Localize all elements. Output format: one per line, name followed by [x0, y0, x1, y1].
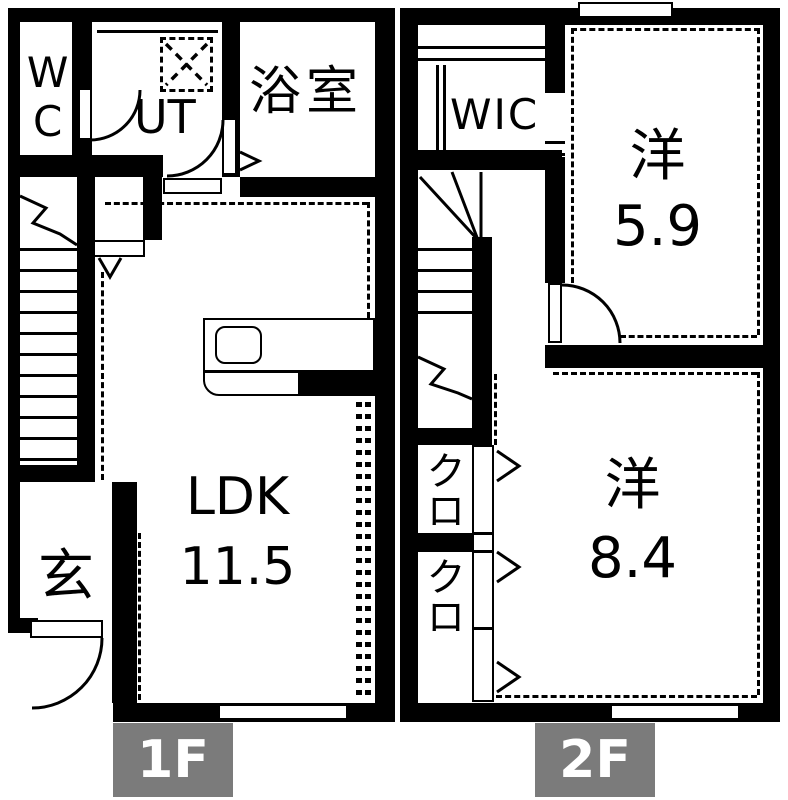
stair-break-zigzag [418, 357, 472, 399]
ldk-size: 11.5 [180, 532, 296, 602]
room-dashed-border [620, 335, 757, 338]
staircase [418, 248, 472, 323]
landing-line [418, 58, 545, 61]
door-arc [32, 638, 102, 708]
window [610, 704, 740, 720]
ldk-name: LDK [186, 462, 289, 532]
room-label-ldk: LDK 11.5 [150, 462, 325, 602]
door-arc [90, 90, 140, 140]
room-label-west-8-4: 洋 8.4 [555, 450, 710, 596]
landing-line [418, 46, 545, 49]
room2-size: 8.4 [588, 523, 677, 596]
wall [545, 8, 565, 93]
door-swing-triangle-icon [497, 662, 519, 692]
door-leaf [78, 88, 92, 140]
closet-pole-line [436, 65, 439, 150]
window-line [97, 30, 218, 33]
stair-post [472, 237, 492, 445]
closet-door-leaf [93, 240, 145, 257]
wall [112, 482, 137, 703]
wall [77, 157, 95, 482]
room-label-entrance: 玄 [38, 546, 94, 608]
wall [143, 155, 162, 240]
closet-door-divider [474, 627, 492, 630]
wall [418, 428, 477, 445]
door-swing-triangle-icon [240, 152, 259, 170]
room-dashed-border [757, 28, 760, 335]
closet-door-divider [474, 550, 492, 553]
door-leaf [222, 118, 237, 175]
closet-pole-line [443, 65, 446, 150]
room-label-closet-1: クロ [420, 450, 464, 530]
opening-line [545, 153, 565, 156]
door-swing-triangle-icon [497, 552, 519, 582]
wall [400, 8, 418, 722]
room-dashed-border [496, 695, 757, 698]
room-dashed-border [571, 28, 760, 31]
floor-2-badge: 2F [535, 723, 655, 797]
wall [8, 8, 20, 633]
room-label-bath: 浴室 [249, 64, 363, 121]
room-dashed-border [571, 28, 574, 283]
room-dashed-border [101, 272, 104, 480]
kitchen-base [298, 372, 375, 396]
closet-door-divider [474, 532, 492, 535]
partition-dots [356, 402, 362, 697]
wall [240, 177, 375, 197]
room1-size: 5.9 [613, 192, 702, 262]
room-label-west-5-9: 洋 5.9 [590, 122, 725, 262]
partition-dots [365, 402, 371, 697]
room-label-wc: WC [24, 48, 70, 146]
wall [418, 150, 562, 170]
window [218, 704, 348, 720]
wall [8, 465, 95, 482]
staircase [20, 248, 77, 464]
kitchen-sink [215, 326, 262, 364]
entrance-door-leaf [30, 620, 103, 638]
wall [375, 8, 395, 722]
wall [8, 8, 395, 22]
washer-pan [160, 37, 213, 92]
wall [545, 345, 780, 368]
door-arc [562, 285, 620, 343]
closet-sliding-doors [472, 445, 494, 702]
door-swing-triangle-icon [497, 451, 519, 481]
winder-step-lines [420, 172, 481, 240]
opening-line [545, 141, 565, 144]
room-label-ut: UT [134, 92, 196, 143]
room-dashed-border [757, 372, 760, 695]
window [578, 2, 673, 18]
room-dashed-border [553, 372, 757, 375]
room-dashed-border [494, 374, 497, 445]
room-dashed-border [105, 202, 368, 205]
room1-name: 洋 [630, 122, 686, 192]
floorplan-canvas: WC UT 浴室 LDK 11.5 玄 1F [0, 0, 788, 800]
floor-1-badge: 1F [113, 723, 233, 797]
room-dashed-border [138, 533, 141, 700]
room2-name: 洋 [605, 450, 661, 523]
room-label-closet-2: クロ [420, 556, 464, 636]
wall [545, 157, 565, 283]
room-label-wic: WIC [450, 92, 539, 138]
stair-break-zigzag [20, 196, 77, 245]
room-dashed-border [367, 202, 370, 318]
door-leaf [548, 283, 562, 343]
sliding-door-leaf [163, 178, 222, 194]
